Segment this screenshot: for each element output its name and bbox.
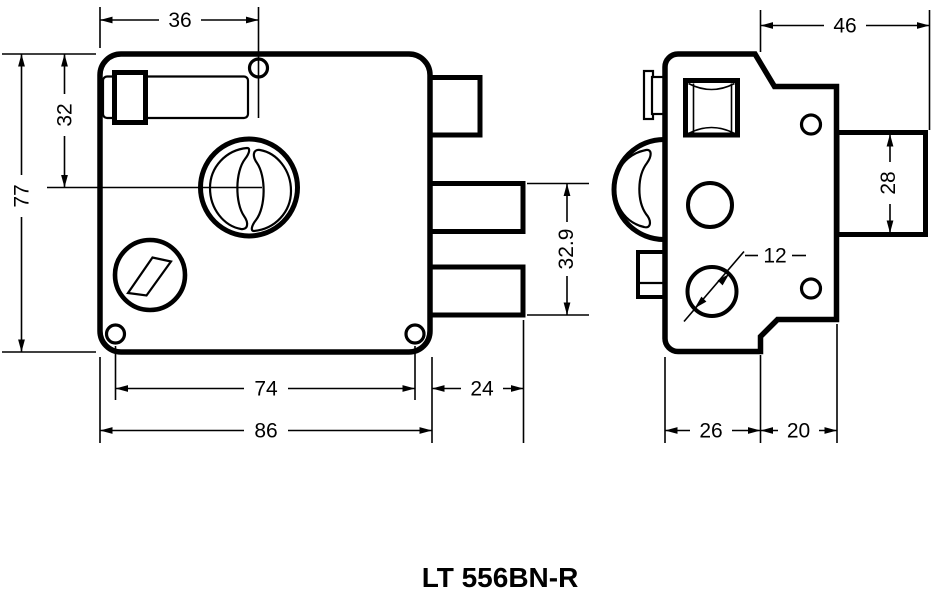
front-screw-hole-bottom-left (107, 325, 125, 343)
side-screw-hole-bottom (802, 279, 821, 298)
front-view: 36 32 77 74 86 24 32.9 (2, 7, 589, 443)
dim-label-77: 77 (11, 184, 34, 207)
dim-label-74: 74 (254, 378, 278, 401)
dim-label-32-group: 32 (53, 94, 77, 136)
front-middle-bolt (430, 184, 523, 232)
dim-label-12: 12 (763, 245, 786, 268)
front-thumb-turn (115, 240, 185, 310)
dim-label-46: 46 (833, 15, 856, 38)
dim-label-26: 26 (699, 420, 722, 443)
front-latch-knob (115, 73, 146, 123)
dim-label-24: 24 (470, 378, 494, 401)
dim-label-28: 28 (877, 171, 900, 194)
side-view: 12 46 28 26 20 (614, 10, 930, 443)
dim-label-20: 20 (787, 420, 810, 443)
model-title: LT 556BN-R (422, 562, 579, 593)
side-spindle-hole (688, 183, 732, 227)
side-screw-hole-top (802, 115, 821, 134)
dim-label-28-group: 28 (876, 162, 900, 204)
front-bottom-bolt (430, 267, 523, 315)
dim-label-329-group: 32.9 (554, 222, 578, 276)
dim-label-329: 32.9 (555, 229, 578, 270)
front-screw-hole-bottom-right (406, 325, 424, 343)
front-top-latch-bolt (430, 78, 480, 136)
dim-label-36: 36 (168, 9, 191, 32)
technical-drawing: 36 32 77 74 86 24 32.9 (0, 0, 933, 600)
dim-label-77-group: 77 (10, 175, 34, 217)
dim-label-32: 32 (54, 103, 77, 126)
dim-label-86: 86 (254, 420, 277, 443)
drawing-canvas: 36 32 77 74 86 24 32.9 (0, 0, 933, 600)
